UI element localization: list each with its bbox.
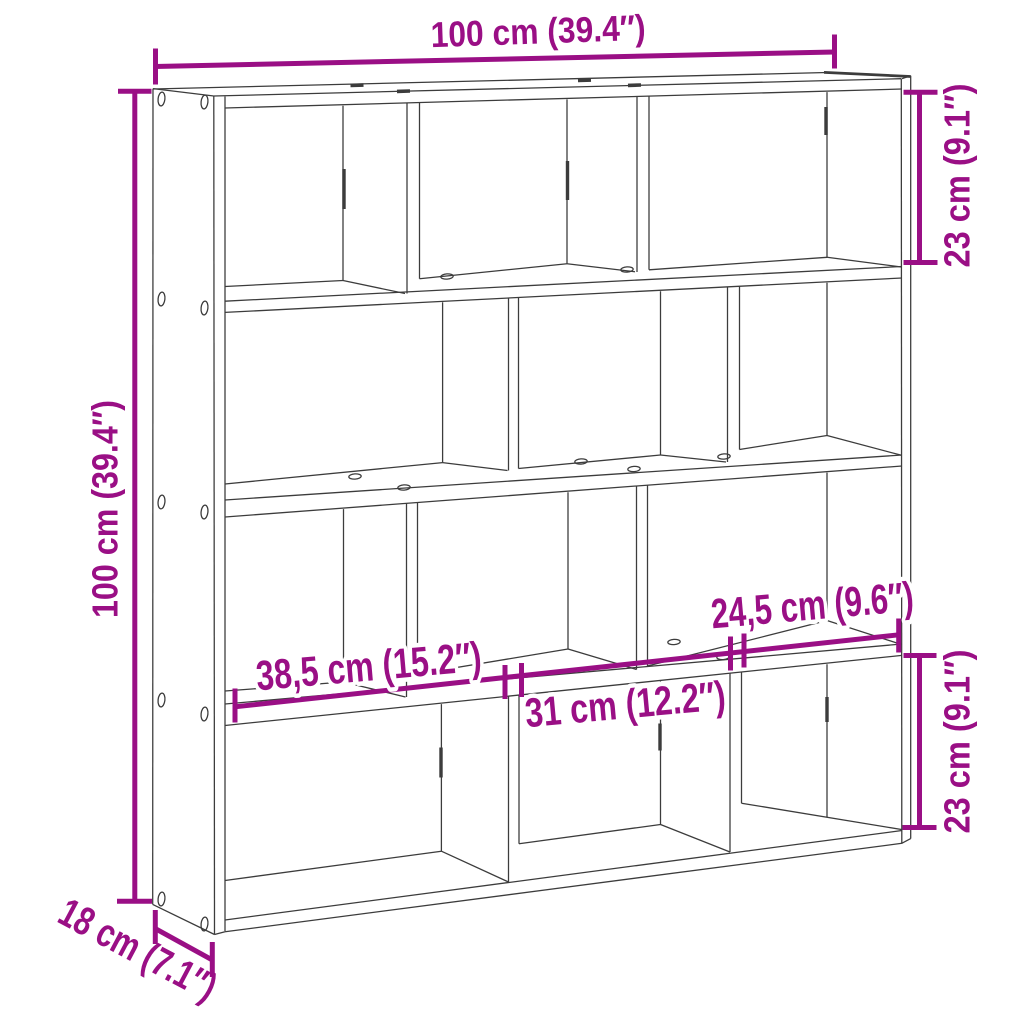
svg-text:100 cm (39.4″): 100 cm (39.4″) <box>85 400 126 618</box>
svg-text:100 cm (39.4″): 100 cm (39.4″) <box>430 7 646 55</box>
svg-text:23 cm (9.1″): 23 cm (9.1″) <box>937 84 978 268</box>
svg-text:23 cm (9.1″): 23 cm (9.1″) <box>937 650 978 834</box>
